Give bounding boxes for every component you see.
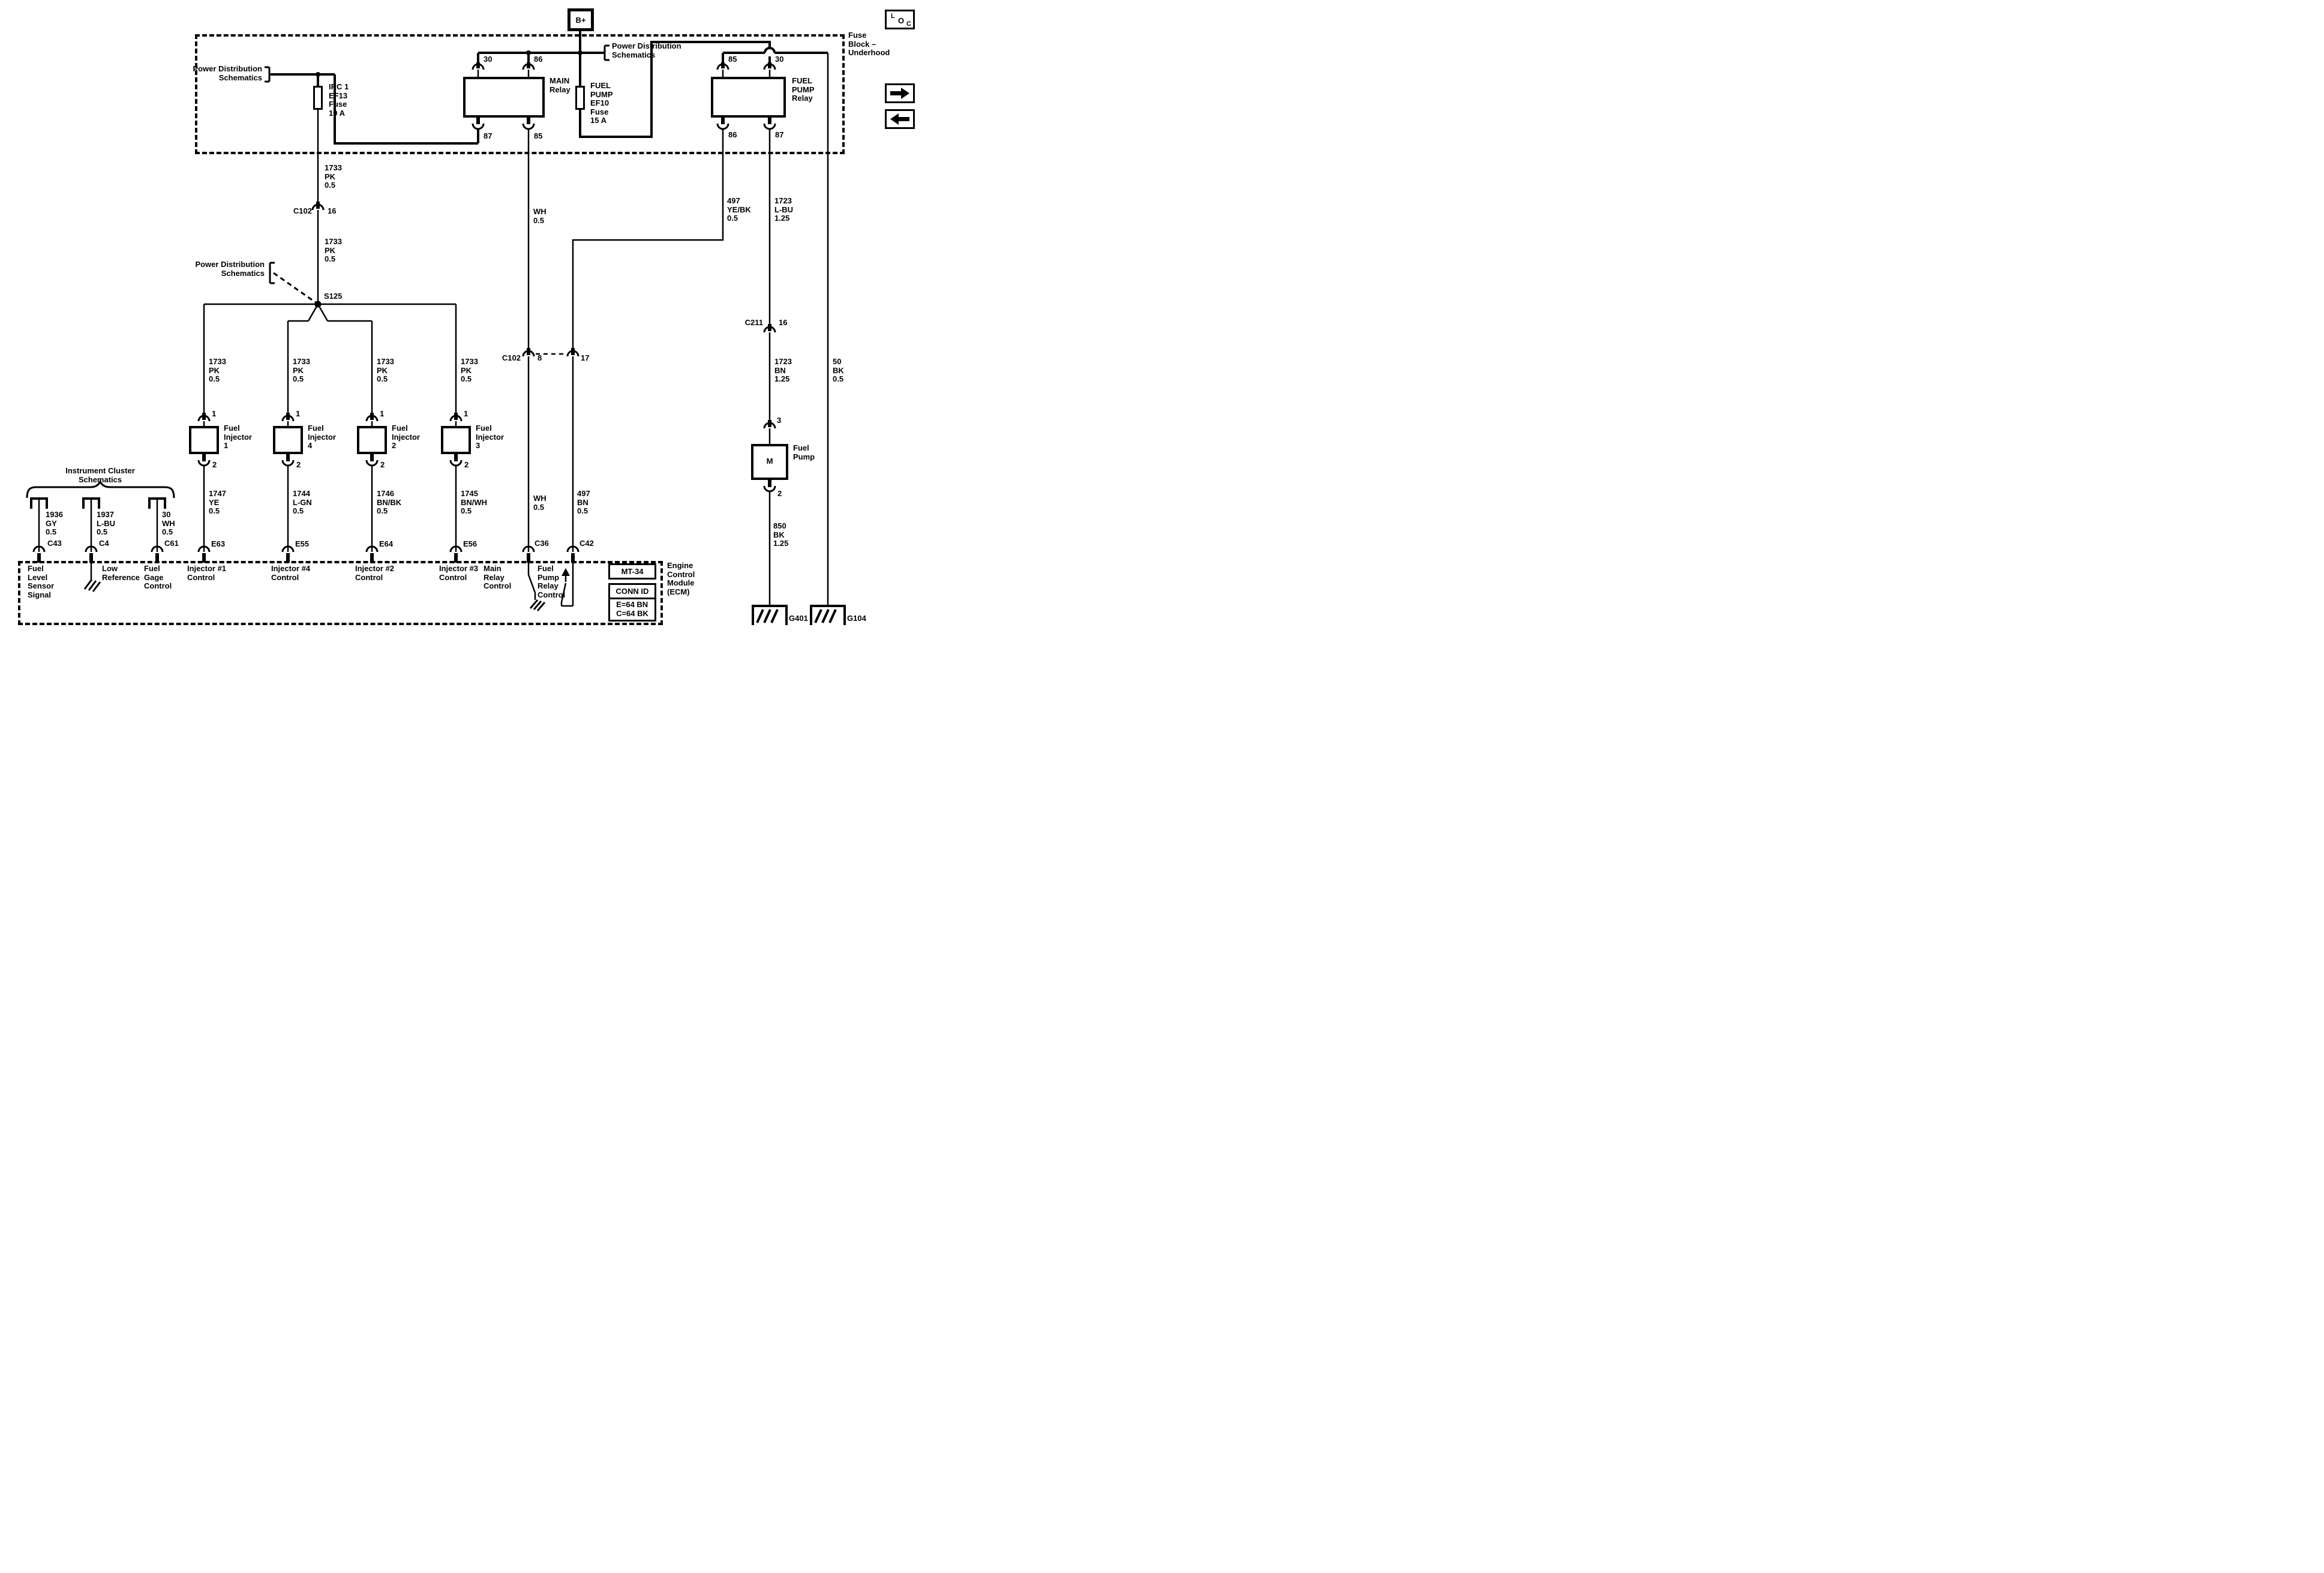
connector-arc-injector-pin2 [199,460,461,466]
fuel-injector-1-box [189,426,219,454]
cluster-wire-1936: 1936 GY 0.5 [46,511,63,537]
next-arrow-button[interactable] [885,83,915,103]
fuel-pump-label: Fuel Pump [793,444,815,461]
inj1-control: Injector #1 Control [187,565,226,582]
main-relay-pin86: 86 [534,55,542,64]
fp-relay-label: FUEL PUMP Relay [792,77,815,103]
loc-letter-c: C [906,20,911,28]
wh-wire-lower: WH 0.5 [533,494,547,512]
inj2-wire-top: 1733 PK 0.5 [377,358,394,384]
g401-label: G401 [789,614,808,623]
c36-label: C36 [535,539,549,548]
conn-id-title: CONN ID [610,585,654,599]
fp-relay-pin87: 87 [775,131,783,140]
inj2-pin2: 2 [380,461,385,470]
fuel-gage-control-label: Fuel Gage Control [144,565,172,591]
wire-497-bn-label: 497 BN 0.5 [577,490,590,516]
ecm-label: Engine Control Module (ECM) [667,562,695,596]
pump-pin3-label: 3 [777,416,781,425]
ef13-fuse-label: IRC 1 EF13 Fuse 10 A [329,83,349,118]
inj4-control: Injector #4 Control [271,565,310,582]
inj3-pin2: 2 [464,461,469,470]
inj4-wire-top: 1733 PK 0.5 [293,358,310,384]
ef10-fuse-symbol [575,86,585,110]
c102-pin8: 8 [538,354,542,363]
inj2-pin1: 1 [380,410,384,419]
main-relay-box [463,77,545,118]
fuse-block-label: Fuse Block – Underhood [848,31,890,58]
wire-label-1733-lower: 1733 PK 0.5 [325,238,342,264]
wire-50-bk-label: 50 BK 0.5 [833,358,844,384]
inj4-wire-bottom: 1744 L-GN 0.5 [293,490,312,516]
fp-relay-pin86: 86 [728,131,737,140]
loc-button[interactable]: L O C [885,10,915,29]
low-reference-label: Low Reference [102,565,140,582]
fuel-injector-2-box [357,426,387,454]
inj2-label: Fuel Injector 2 [392,424,420,451]
inj1-pin2: 2 [212,461,217,470]
loc-letter-l: L [891,13,895,20]
loc-letter-o: O [898,17,904,26]
c102-8-name: C102 [491,354,521,363]
c43-label: C43 [47,539,62,548]
fuel-level-sensor-signal-label: Fuel Level Sensor Signal [28,565,54,599]
c102-16-name: C102 [282,207,312,216]
wiring-diagram-page: B+ M MT-34 CONN ID E=64 BN C=64 BK L O C… [0,0,929,629]
c4-label: C4 [99,539,109,548]
bplus-terminal: B+ [568,8,594,31]
inj3-pin1: 1 [464,410,468,419]
mt34-label: MT-34 [610,565,654,578]
g104-label: G104 [847,614,866,623]
pds-left-label: Power Distribution Schematics [172,65,262,82]
wire-497-yebk [573,129,723,348]
ef13-fuse-symbol [313,86,323,110]
mt34-box: MT-34 [608,563,656,580]
pds-s125-leader [274,273,316,302]
bplus-label: B+ [571,11,591,28]
c102-16-pin: 16 [328,207,336,216]
wire-injector-control [204,466,456,552]
wire-497-yebk-label: 497 YE/BK 0.5 [727,197,751,223]
c61-label: C61 [164,539,179,548]
inj1-wire-bottom: 1747 YE 0.5 [209,490,226,516]
inj3-label: Fuel Injector 3 [476,424,504,451]
ground-g401 [753,606,786,625]
ground-g104 [811,606,845,625]
connector-arc-injector-pin1 [199,416,461,421]
left-arrow-icon [887,111,913,127]
fuel-pump-relay-box [711,77,786,118]
inj1-connector: E63 [211,540,225,549]
main-relay-pin87: 87 [484,132,492,141]
inj1-wire-top: 1733 PK 0.5 [209,358,226,384]
main-relay-pin30: 30 [484,55,492,64]
prev-arrow-button[interactable] [885,109,915,129]
inj1-label: Fuel Injector 1 [224,424,252,451]
ef10-fuse-label: FUEL PUMP EF10 Fuse 15 A [590,82,613,125]
inj4-label: Fuel Injector 4 [308,424,336,451]
main-relay-label: MAIN Relay [550,77,571,94]
conn-id-box: CONN ID E=64 BN C=64 BK [608,583,656,622]
conn-id-values: E=64 BN C=64 BK [610,599,654,620]
inj2-wire-bottom: 1746 BN/BK 0.5 [377,490,401,516]
pump-pin2-label: 2 [777,490,782,499]
inj4-connector: E55 [295,540,309,549]
inj2-control: Injector #2 Control [355,565,394,582]
wire-850-bk-label: 850 BK 1.25 [773,522,788,548]
wh-wire-upper: WH 0.5 [533,208,547,225]
inj2-connector: E64 [379,540,393,549]
cluster-wire-1937: 1937 L-BU 0.5 [97,511,115,537]
main-relay-pin85: 85 [534,132,542,141]
right-arrow-icon [887,85,913,101]
fp-relay-pin85: 85 [728,55,737,64]
c211-pin: 16 [779,319,787,328]
inj3-wire-top: 1733 PK 0.5 [461,358,478,384]
c211-name: C211 [733,319,763,328]
connector-stub [204,413,456,420]
inj3-wire-bottom: 1745 BN/WH 0.5 [461,490,487,516]
motor-m-label: M [765,457,774,466]
main-relay-control-label: Main Relay Control [484,565,511,591]
inj4-pin1: 1 [296,410,300,419]
inj1-pin1: 1 [212,410,216,419]
c102-pin17: 17 [581,354,589,363]
wire-1723-lbu-label: 1723 L-BU 1.25 [774,197,793,223]
connector-stub [204,454,456,461]
splice-s125-label: S125 [324,292,342,301]
wire-s125-diagonals [288,304,372,321]
fp-relay-control-label: Fuel Pump Relay Control [538,565,565,599]
inj4-pin2: 2 [296,461,301,470]
wire-label-1733-upper: 1733 PK 0.5 [325,164,342,190]
inj3-connector: E56 [463,540,477,549]
cluster-connector-stubs [31,499,165,509]
c42-label: C42 [580,539,594,548]
pds-top-label: Power Distribution Schematics [612,42,681,59]
fuel-injector-4-box [273,426,303,454]
fp-relay-pin30: 30 [775,55,783,64]
wire-1723-bn-label: 1723 BN 1.25 [774,358,792,384]
pds-s125-label: Power Distribution Schematics [175,260,265,278]
cluster-wire-30: 30 WH 0.5 [162,511,175,537]
cluster-title: Instrument Cluster Schematics [55,467,145,484]
fuel-injector-3-box [441,426,471,454]
inj3-control: Injector #3 Control [439,565,478,582]
